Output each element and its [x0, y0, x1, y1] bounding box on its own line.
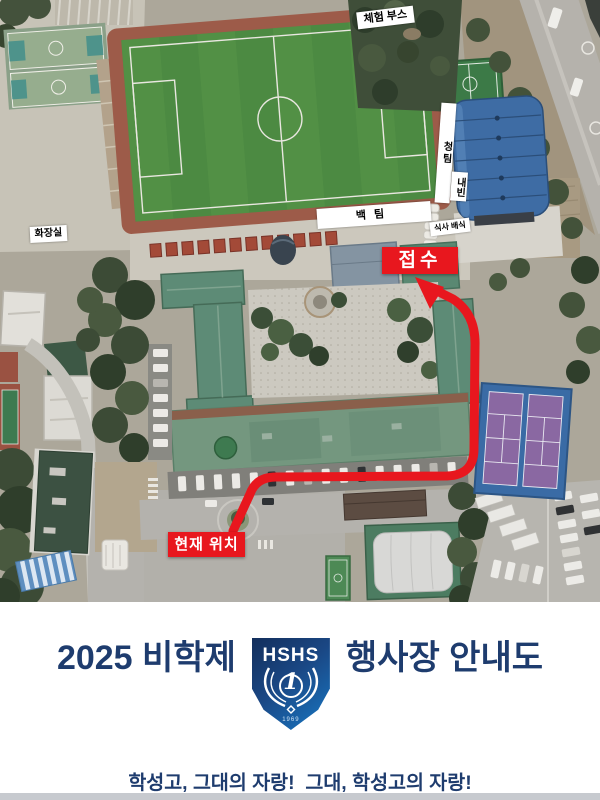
event-title: 2025 비학제 HSHS 1 1969 행사장 안내도	[0, 632, 600, 730]
event-title-right: 행사장 안내도	[346, 632, 543, 684]
route-overlay	[0, 0, 600, 602]
school-logo: HSHS 1 1969	[252, 638, 330, 730]
route-path	[233, 291, 475, 531]
bottom-edge-strip	[0, 793, 600, 800]
label-current-location: 현재 위치	[168, 532, 245, 557]
event-guide-poster: 체험 부스 청팀 내빈 백팀 식사 배식 화장실 접수 현재 위치 2025 비…	[0, 0, 600, 800]
logo-number: 1	[252, 669, 330, 695]
poster-footer: 2025 비학제 HSHS 1 1969 행사장 안내도	[0, 602, 600, 800]
label-guests: 내빈	[450, 171, 468, 201]
event-title-left: 2025 비학제	[57, 632, 236, 684]
label-reception: 접수	[382, 247, 458, 274]
label-restroom: 화장실	[30, 225, 68, 243]
route-arrowhead	[415, 277, 444, 309]
campus-satellite-map: 체험 부스 청팀 내빈 백팀 식사 배식 화장실 접수 현재 위치	[0, 0, 600, 602]
school-slogan: 학성고, 그대의 자랑! 그대, 학성고의 자랑!	[0, 766, 600, 795]
logo-year: 1969	[252, 717, 330, 723]
